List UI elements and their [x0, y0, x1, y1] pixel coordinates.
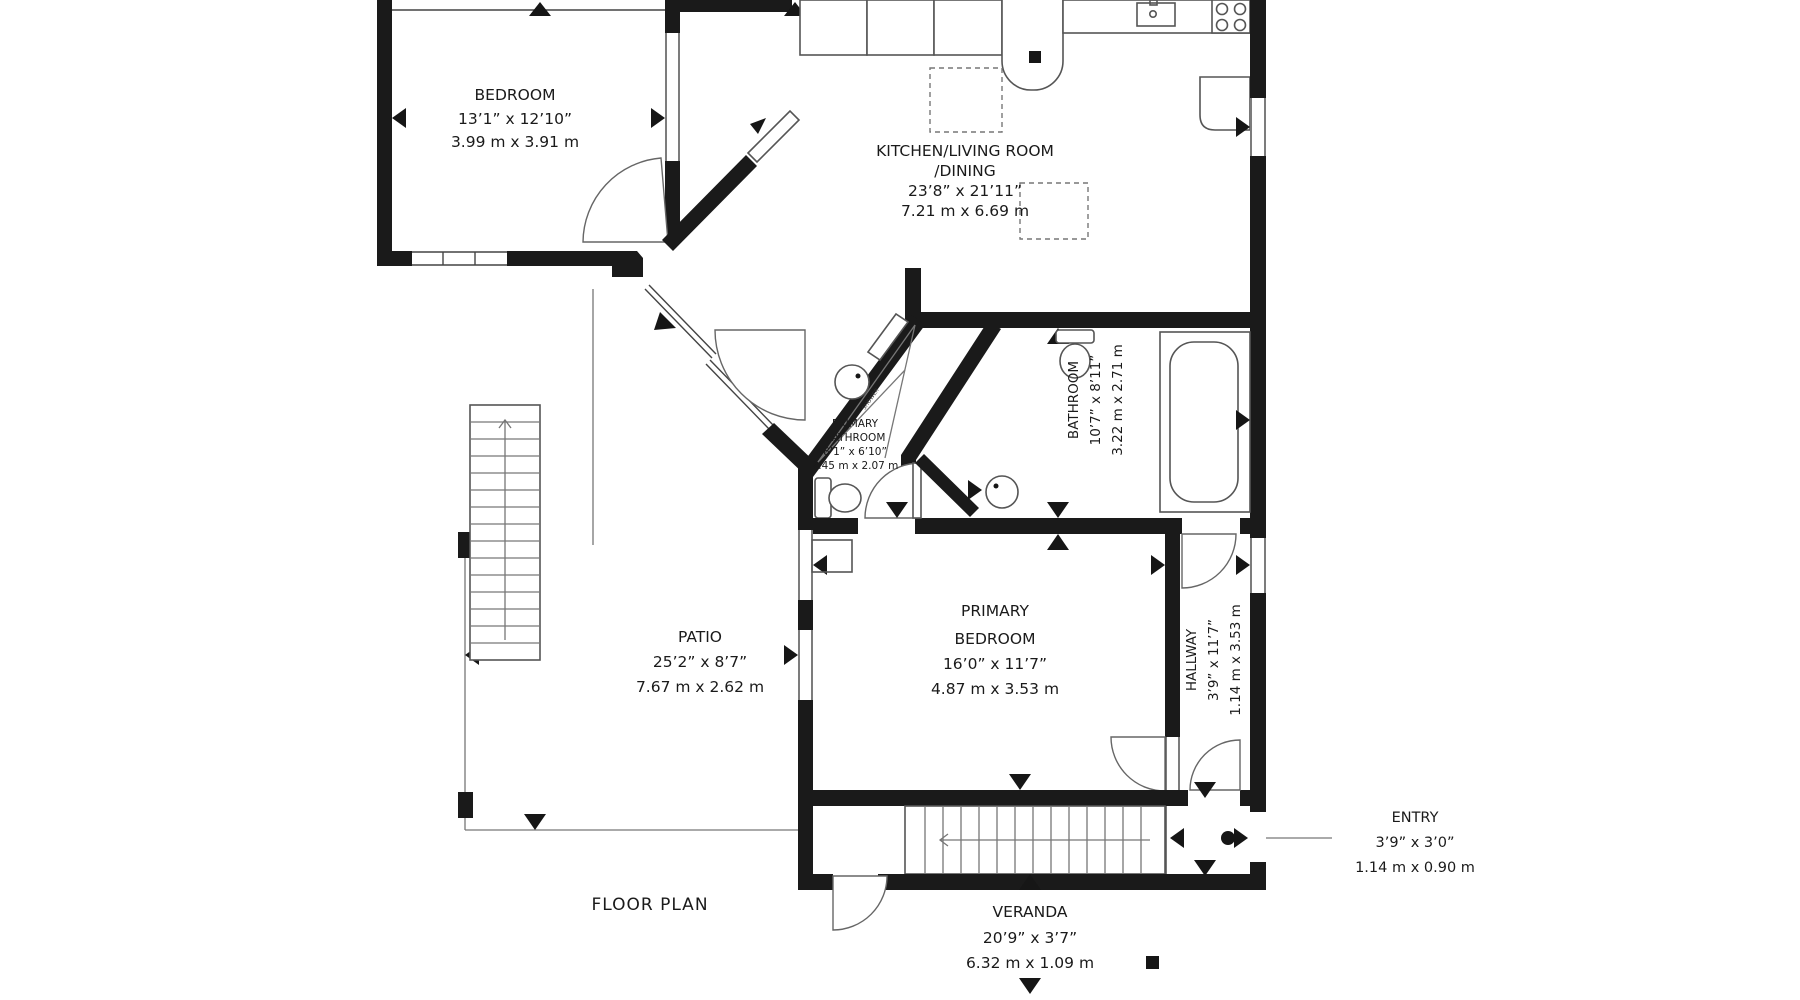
- window-line: [645, 289, 712, 358]
- bathtub-icon: [1170, 342, 1238, 502]
- bedroom-dim-imperial: 13’1” x 12’10”: [458, 110, 572, 128]
- kitchen-label: KITCHEN/LIVING ROOM: [876, 142, 1054, 160]
- primary-bathroom-label-2: BATHROOM: [825, 432, 886, 444]
- right-wall-window: [1250, 98, 1266, 156]
- dashed-placeholder: [930, 68, 1002, 132]
- door-marker-left-icon: [1170, 828, 1184, 848]
- bedroom-hallway-door-swing: [1111, 737, 1165, 791]
- door-marker-down-icon: [1009, 774, 1031, 790]
- kitchen-dim-imperial: 23’8” x 21’11”: [908, 182, 1022, 200]
- kitchen-island: [1002, 0, 1063, 90]
- window-marker-right-icon: [1236, 117, 1250, 137]
- toilet-bowl-icon: [829, 484, 861, 512]
- bedroom-door-leaf: [748, 111, 799, 162]
- primary-bathroom-dim-imperial: 8’1” x 6’10”: [823, 446, 887, 458]
- patio-dim-imperial: 25’2” x 8’7”: [653, 653, 747, 671]
- page-title: FLOOR PLAN: [591, 895, 708, 915]
- bedroom-door-swing: [583, 158, 668, 242]
- door-marker-up-icon: [1047, 534, 1069, 550]
- right-wall-window: [1250, 538, 1266, 593]
- window-marker-left-icon: [392, 108, 406, 128]
- window-marker-right-icon: [784, 645, 798, 665]
- primary-bedroom-label: PRIMARY: [961, 602, 1029, 620]
- patio-dim-metric: 7.67 m x 2.62 m: [636, 678, 764, 696]
- primary-bathroom-label: PRIMARY: [832, 418, 879, 430]
- bathroom-label: BATHROOM: [1066, 361, 1082, 439]
- door-marker-icon: [750, 118, 766, 134]
- window-marker-right-icon: [1236, 555, 1250, 575]
- cabinet: [800, 0, 867, 55]
- bedroom-right-window: [665, 33, 680, 161]
- floor-plan-page: BEDROOM 13’1” x 12’10” 3.99 m x 3.91 m K…: [0, 0, 1800, 1000]
- closet-door-swing: [833, 876, 887, 930]
- kitchen-top-wall: [680, 0, 792, 12]
- entry-dim-imperial: 3’9” x 3’0”: [1376, 835, 1455, 851]
- bathroom-separator-diagonal: [901, 321, 1001, 463]
- entry-door-gap: [1250, 812, 1266, 862]
- door-marker-right-icon: [968, 480, 982, 500]
- hallway-label: HALLWAY: [1184, 628, 1200, 691]
- floor-plan-drawing: BEDROOM 13’1” x 12’10” 3.99 m x 3.91 m K…: [0, 0, 1800, 1000]
- kitchen-dim-metric: 7.21 m x 6.69 m: [901, 202, 1029, 220]
- door-leaf: [913, 463, 921, 518]
- bedroom-corner-block: [612, 251, 643, 277]
- door-marker-down-icon: [1019, 978, 1041, 994]
- bathrooms-top-wall: [905, 312, 1266, 328]
- kitchen-label-2: /DINING: [934, 162, 996, 180]
- faucet-dot-icon: [856, 374, 861, 379]
- door-marker-down-icon: [1194, 860, 1216, 876]
- west-window: [798, 630, 813, 700]
- hallway-top-door-gap: [1182, 518, 1240, 534]
- window-marker-down-icon: [524, 814, 546, 830]
- toilet-tank-icon: [1056, 330, 1094, 343]
- closet-west-wall: [798, 806, 813, 874]
- bathroom-sink-icon: [986, 476, 1018, 508]
- hallway-dim-imperial: 3’9” x 11’7”: [1206, 619, 1222, 701]
- bedroom-left-wall: [377, 0, 392, 266]
- hallway-dim-metric: 1.14 m x 3.53 m: [1228, 604, 1244, 716]
- veranda-dim-imperial: 20’9” x 3’7”: [983, 929, 1077, 947]
- primary-bedroom-east-wall: [1165, 534, 1180, 737]
- faucet-dot-icon: [994, 484, 999, 489]
- island-sink-icon: [1029, 51, 1041, 63]
- bedroom-dim-metric: 3.99 m x 3.91 m: [451, 133, 579, 151]
- hallway-top-door-swing: [1182, 534, 1236, 588]
- entry-label: ENTRY: [1392, 810, 1439, 826]
- bedroom-label: BEDROOM: [475, 86, 556, 104]
- bathroom-dim-metric: 3.22 m x 2.71 m: [1110, 344, 1126, 456]
- primary-bathroom-dim-metric: 2.45 m x 2.07 m: [812, 460, 899, 472]
- primary-bedroom-dim-metric: 4.87 m x 3.53 m: [931, 680, 1059, 698]
- bedroom-room: BEDROOM 13’1” x 12’10” 3.99 m x 3.91 m: [377, 0, 799, 277]
- primary-bathroom-sink-icon: [835, 365, 869, 399]
- bathroom-dim-imperial: 10’7” x 8’11”: [1088, 355, 1104, 446]
- veranda-marker-square: [1146, 956, 1159, 969]
- window-marker-right-icon: [651, 108, 665, 128]
- cabinet: [867, 0, 934, 55]
- wall-stub: [905, 268, 921, 312]
- bedroom-bottom-window: [412, 251, 507, 266]
- window-marker-right-icon: [1151, 555, 1165, 575]
- patio-label: PATIO: [678, 628, 722, 646]
- door-marker-down-icon: [1047, 502, 1069, 518]
- kitchen-living-room: KITCHEN/LIVING ROOM /DINING 23’8” x 21’1…: [680, 0, 1250, 239]
- cabinet: [934, 0, 1002, 55]
- window-marker-up-icon: [529, 2, 551, 16]
- patio-post: [458, 792, 473, 818]
- primary-bedroom-label-2: BEDROOM: [955, 630, 1036, 648]
- entry-dim-metric: 1.14 m x 0.90 m: [1355, 860, 1475, 876]
- veranda-label: VERANDA: [992, 903, 1067, 921]
- entry-point-dot-icon: [1221, 831, 1235, 845]
- hallway-bottom-door-gap: [1188, 790, 1240, 806]
- hallway-room: HALLWAY 3’9” x 11’7” 1.14 m x 3.53 m: [1182, 518, 1244, 806]
- primary-bedroom-dim-imperial: 16’0” x 11’7”: [943, 655, 1047, 673]
- bathroom-door-swing: [715, 330, 805, 420]
- west-window: [798, 530, 813, 600]
- dashed-placeholder: [1020, 183, 1088, 239]
- window-marker-diagonal-icon: [654, 312, 676, 330]
- primary-bathroom-door-gap: [858, 518, 915, 534]
- window-marker-right-icon: [1236, 410, 1250, 430]
- veranda-dim-metric: 6.32 m x 1.09 m: [966, 954, 1094, 972]
- door-marker-right-icon: [1234, 828, 1248, 848]
